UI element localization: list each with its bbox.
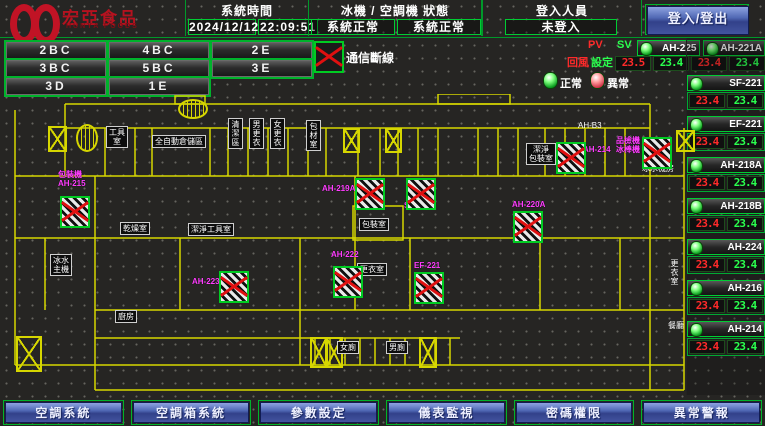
sv-value: 23.4 — [727, 299, 763, 313]
device-values: 23.4 23.4 — [687, 338, 765, 356]
row-sv-label: 設定 — [591, 56, 613, 71]
sv-header-label: SV — [617, 39, 632, 51]
device-unit: SF-221 23.4 23.4 — [687, 75, 765, 110]
device-offline-icon[interactable] — [333, 266, 363, 298]
spiral-stair-icon — [76, 124, 98, 152]
device-tag-label: AH-223 — [192, 277, 220, 286]
pv-header-label: PV — [588, 39, 603, 51]
device-unit: AH-224 23.4 23.4 — [687, 239, 765, 274]
login-logout-button[interactable]: 登入/登出 — [647, 6, 749, 35]
zone-button[interactable]: 3BC — [6, 60, 106, 77]
abnormal-label: 異常 — [607, 75, 629, 91]
zone-button[interactable]: 1E — [109, 78, 209, 95]
stairs-icon — [676, 130, 695, 152]
system-time-section: 系統時間 2024/12/12 22:09:51 — [185, 0, 309, 36]
status-lamp-icon — [640, 42, 653, 56]
room-label: 男廁 — [386, 341, 408, 354]
logo-crescent-icon — [32, 4, 60, 44]
room-label: 更衣室 — [668, 258, 681, 287]
nav-button[interactable]: 儀表監視 — [388, 402, 505, 423]
zone-button[interactable]: 3D — [6, 78, 106, 95]
sv-value: 23.4 — [727, 258, 763, 272]
device-offline-icon[interactable] — [414, 272, 444, 304]
device-tag-label: AH-222 — [331, 250, 359, 259]
sv-value: 23.4 — [727, 135, 763, 149]
device-button[interactable]: AH-214 — [687, 321, 765, 337]
room-label: 男更衣 — [249, 118, 264, 149]
device-offline-icon[interactable] — [642, 137, 672, 169]
device-button[interactable]: SF-221 — [687, 75, 765, 91]
device-values: 23.4 23.4 — [687, 215, 765, 233]
room-label: 冰水 主機 — [50, 254, 72, 276]
login-section: 登入人員 未登入 — [482, 0, 642, 36]
nav-button-frame: 參數設定 — [258, 400, 379, 425]
zone-button[interactable]: 2BC — [6, 42, 106, 59]
sv-value: 23.4 — [653, 56, 689, 71]
login-user-value: 未登入 — [505, 19, 617, 35]
device-offline-icon[interactable] — [355, 178, 385, 210]
device-values: 23.4 23.4 — [687, 174, 765, 192]
nav-button-frame: 空調系統 — [3, 400, 124, 425]
room-label: 女更衣 — [270, 118, 285, 149]
device-values: 23.4 23.4 — [687, 256, 765, 274]
room-label: 包裝室 — [359, 218, 389, 231]
pv-value: 23.5 — [615, 56, 651, 71]
status-lamp-icon — [690, 241, 703, 255]
comm-loss-icon — [314, 41, 344, 73]
chiller-status-value: 系統正常 — [311, 19, 395, 35]
room-label: 工具 室 — [106, 126, 128, 148]
room-label: 潔淨工具室 — [188, 223, 234, 236]
pv-value: 23.4 — [689, 258, 725, 272]
device-button[interactable]: EF-221 — [687, 116, 765, 132]
device-offline-icon[interactable] — [556, 142, 586, 174]
normal-label: 正常 — [560, 75, 582, 91]
device-offline-icon[interactable] — [60, 196, 90, 228]
stairs-icon — [343, 128, 360, 153]
nav-button[interactable]: 空調箱系統 — [133, 402, 250, 423]
login-button-frame: 登入/登出 — [645, 4, 749, 35]
nav-button[interactable]: 參數設定 — [260, 402, 377, 423]
sv-value: 23.4 — [727, 217, 763, 231]
zone-button[interactable]: 5BC — [109, 60, 209, 77]
device-unit: EF-221 23.4 23.4 — [687, 116, 765, 151]
device-values: 23.4 23.4 — [687, 297, 765, 315]
stairs-icon — [48, 126, 67, 152]
machine-status-label: 冰機 / 空調機 狀態 — [309, 2, 481, 19]
device-button[interactable]: AH-218B — [687, 198, 765, 214]
room-label: 餐廳 — [666, 320, 686, 331]
header-bar: 宏亞食品 HUNYA FOODS 系統時間 2024/12/12 22:09:5… — [0, 0, 765, 38]
room-label: 潔淨 包裝室 — [526, 143, 556, 165]
nav-button-frame: 密碼權限 — [514, 400, 635, 425]
pv-value: 23.4 — [689, 299, 725, 313]
device-unit: AH-218B 23.4 23.4 — [687, 198, 765, 233]
company-logo: 宏亞食品 HUNYA FOODS — [0, 0, 183, 36]
nav-button-frame: 異常警報 — [641, 400, 762, 425]
device-offline-icon[interactable] — [406, 178, 436, 210]
room-label: 全自動倉儲區 — [152, 135, 206, 148]
device-offline-icon[interactable] — [513, 211, 543, 243]
status-lamp-icon — [690, 282, 703, 296]
nav-button-frame: 儀表監視 — [386, 400, 507, 425]
zone-button-frame: 3E — [210, 58, 314, 79]
nav-button[interactable]: 密碼權限 — [516, 402, 633, 423]
ac-status-value: 系統正常 — [397, 19, 481, 35]
device-unit: AH-214 23.4 23.4 — [687, 321, 765, 356]
status-lamp-icon — [690, 323, 703, 337]
stairs-icon — [419, 337, 437, 368]
status-lamp-icon — [690, 200, 703, 214]
system-date-value: 2024/12/12 — [188, 19, 256, 35]
device-tag-label: EF-221 — [414, 261, 440, 270]
device-tag-label: 包裝機 AH-215 — [58, 170, 86, 188]
room-label: 女廁 — [337, 341, 359, 354]
stairs-icon — [16, 336, 42, 372]
sv-value: 23.4 — [727, 176, 763, 190]
room-label: 乾燥室 — [120, 222, 150, 235]
device-offline-icon[interactable] — [219, 271, 249, 303]
device-values: 23.4 23.4 — [687, 133, 765, 151]
nav-button[interactable]: 異常警報 — [643, 402, 760, 423]
zone-button[interactable]: 4BC — [109, 42, 209, 59]
pv-value: 23.4 — [689, 340, 725, 354]
status-lamp-icon — [690, 159, 703, 173]
sv-value: 23.4 — [727, 94, 763, 108]
abnormal-lamp-icon — [590, 72, 605, 89]
sv-value: 23.4 — [727, 340, 763, 354]
hmi-screen: { "header": { "logo": { "brand": "宏亞食品",… — [0, 0, 765, 426]
zone-button[interactable]: 3E — [212, 60, 312, 77]
stairs-icon — [385, 128, 402, 153]
brand-subtitle: HUNYA FOODS — [66, 23, 139, 30]
pv-value: 23.4 — [689, 94, 725, 108]
device-button[interactable]: AH-216 — [687, 280, 765, 296]
zone-button[interactable]: 2E — [212, 42, 312, 59]
machine-status-section: 冰機 / 空調機 狀態 系統正常 系統正常 — [308, 0, 482, 36]
comm-loss-label: 通信斷線 — [346, 49, 394, 66]
device-status-panel: SF-221 23.4 23.4 EF-221 23.4 23.4 AH-218… — [686, 38, 765, 395]
pv-value: 23.4 — [689, 217, 725, 231]
room-label: 包材室 — [306, 120, 321, 151]
nav-button[interactable]: 空調系統 — [5, 402, 122, 423]
room-label: AH-B3 — [576, 120, 604, 131]
row-pv-label: 回風 — [567, 56, 589, 71]
device-tag-label: AH-219A — [322, 184, 355, 193]
bottom-nav: 空調系統 空調箱系統 參數設定 儀表監視 密碼權限 異常警報 — [0, 399, 765, 426]
device-button[interactable]: AH-218A — [687, 157, 765, 173]
device-tag-label: 品檢機 冰棒機 — [616, 136, 640, 154]
room-label: 廚房 — [115, 310, 137, 323]
device-button[interactable]: AH-224 — [687, 239, 765, 255]
system-time-label: 系統時間 — [186, 2, 308, 19]
device-unit: AH-218A 23.4 23.4 — [687, 157, 765, 192]
spiral-stair-icon — [178, 99, 208, 119]
pv-value: 23.4 — [689, 176, 725, 190]
device-values: 23.4 23.4 — [687, 92, 765, 110]
status-lamp-icon — [690, 77, 703, 91]
normal-lamp-icon — [543, 72, 558, 89]
login-label: 登入人員 — [483, 2, 641, 19]
room-label: 清潔區 — [228, 118, 243, 149]
device-unit: AH-216 23.4 23.4 — [687, 280, 765, 315]
device-tag-label: AH-214 — [583, 145, 611, 154]
nav-button-frame: 空調箱系統 — [131, 400, 252, 425]
device-tag-label: AH-220A — [512, 200, 545, 209]
